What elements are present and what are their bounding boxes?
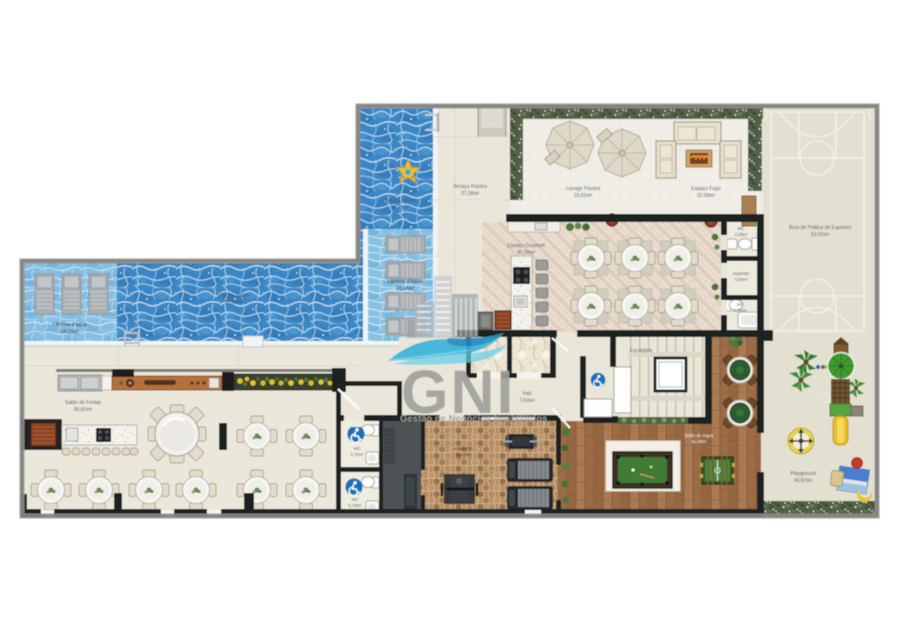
svg-text:19,14m²: 19,14m² <box>396 286 415 292</box>
svg-text:Playground: Playground <box>790 471 816 477</box>
svg-text:41,06m²: 41,06m² <box>691 439 707 444</box>
svg-text:30,12m²: 30,12m² <box>455 452 471 457</box>
svg-text:WC: WC <box>737 302 744 307</box>
svg-text:53,52m²: 53,52m² <box>811 232 830 238</box>
svg-text:2,25m²: 2,25m² <box>734 232 748 237</box>
svg-text:Lâmina d'água: Lâmina d'água <box>388 279 423 285</box>
svg-text:Salão de Jogos: Salão de Jogos <box>685 433 714 438</box>
svg-text:5,70m²: 5,70m² <box>348 503 362 508</box>
svg-text:45,87m²: 45,87m² <box>794 478 813 484</box>
svg-text:2,25m²: 2,25m² <box>733 308 747 313</box>
svg-text:Salão de Festas: Salão de Festas <box>65 400 102 406</box>
svg-text:19,14m²: 19,14m² <box>61 329 80 335</box>
svg-text:Terraço Piscina: Terraço Piscina <box>453 184 487 190</box>
svg-text:14,72m²: 14,72m² <box>391 205 410 211</box>
svg-text:32,00m²: 32,00m² <box>697 193 716 199</box>
svg-text:Piscina Adulto: Piscina Adulto <box>218 293 250 299</box>
svg-text:37,28m²: 37,28m² <box>461 191 480 197</box>
svg-text:7,54m²: 7,54m² <box>734 277 748 282</box>
svg-text:WC: WC <box>354 446 361 451</box>
svg-text:Academia: Academia <box>454 446 473 451</box>
svg-text:Hall: Hall <box>523 391 532 397</box>
svg-text:Gestão de Negócios Imobiliário: Gestão de Negócios Imobiliários <box>400 414 547 425</box>
svg-text:Espaço Gourmet: Espaço Gourmet <box>507 243 545 249</box>
svg-text:90,30m²: 90,30m² <box>517 250 536 256</box>
svg-text:Depósito: Depósito <box>733 271 750 276</box>
svg-text:WC: WC <box>738 226 745 231</box>
svg-text:3,70m²: 3,70m² <box>350 452 364 457</box>
svg-text:Piscina Infantil: Piscina Infantil <box>384 198 416 204</box>
svg-text:WC: WC <box>352 497 359 502</box>
svg-text:60,98m²: 60,98m² <box>225 300 244 306</box>
svg-text:Espaço Fogo: Espaço Fogo <box>691 186 721 192</box>
svg-text:7,63m²: 7,63m² <box>519 398 535 404</box>
svg-text:85,62m²: 85,62m² <box>74 407 93 413</box>
svg-text:29,62m²: 29,62m² <box>574 193 593 199</box>
svg-text:Escadaria: Escadaria <box>630 348 652 354</box>
svg-text:Área de Prática de Esportes: Área de Prática de Esportes <box>789 224 852 231</box>
svg-text:Lâmina d'água: Lâmina d'água <box>53 322 88 328</box>
svg-text:Lounge Piscina: Lounge Piscina <box>566 186 600 192</box>
